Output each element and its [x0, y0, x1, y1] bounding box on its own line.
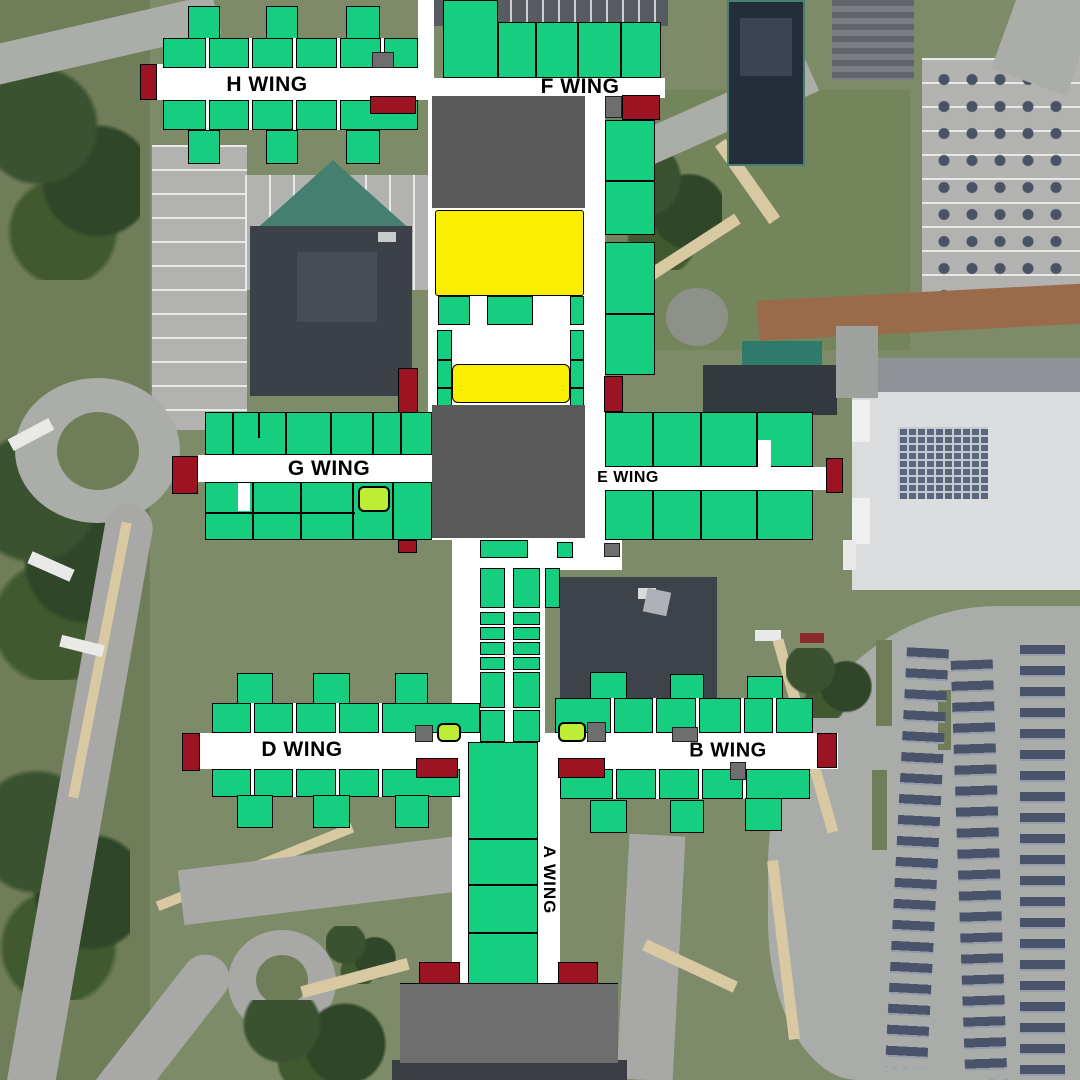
- stairwell: [419, 962, 460, 984]
- room-divider: [378, 769, 383, 797]
- room: [480, 657, 505, 670]
- room-divider: [740, 698, 745, 733]
- wall-line: [400, 412, 402, 455]
- wall-line: [300, 482, 302, 540]
- room-divider: [250, 703, 255, 733]
- room-divider: [612, 769, 617, 799]
- wing-label-g: G WING: [288, 457, 370, 481]
- room-gray: [372, 52, 394, 68]
- room: [437, 330, 452, 360]
- grass-island: [872, 770, 887, 850]
- building-roof: [297, 252, 377, 322]
- wall-line: [285, 412, 287, 455]
- building-roof: [850, 358, 1080, 396]
- building-roof: [703, 365, 837, 415]
- building-roof: [852, 400, 870, 442]
- wall-line: [756, 490, 758, 540]
- wall-line: [372, 412, 374, 455]
- wing-label-b: B WING: [689, 740, 766, 763]
- room: [443, 0, 498, 78]
- stairwell: [558, 962, 598, 984]
- room: [570, 330, 584, 360]
- parking-lot: [152, 145, 247, 430]
- parked-cars: [930, 66, 1072, 316]
- stairwell: [416, 758, 458, 778]
- room-row: [605, 490, 813, 540]
- room-divider: [336, 38, 341, 68]
- room-divider: [292, 38, 297, 68]
- room: [513, 642, 540, 655]
- room-highlight: [437, 723, 461, 742]
- room: [513, 710, 540, 742]
- room: [188, 6, 220, 40]
- room-gray: [415, 725, 433, 742]
- room-yellow: [452, 364, 570, 403]
- stairwell: [398, 540, 417, 553]
- room: [395, 795, 429, 828]
- room: [480, 627, 505, 640]
- building-roof: [392, 1060, 627, 1080]
- room: [480, 710, 505, 742]
- room-divider: [292, 100, 297, 130]
- room: [570, 360, 584, 388]
- room: [237, 673, 273, 705]
- room-divider: [655, 769, 660, 799]
- block-gray: [432, 96, 585, 208]
- room-divider: [292, 703, 297, 733]
- wall-line: [330, 412, 332, 455]
- wall-line: [252, 482, 254, 540]
- grass-island: [876, 640, 892, 726]
- room-row: [205, 412, 432, 455]
- wall-line: [205, 512, 355, 514]
- room: [438, 296, 470, 325]
- room: [480, 612, 505, 625]
- room: [480, 540, 528, 558]
- wall-line: [468, 932, 538, 934]
- room: [557, 542, 573, 558]
- stairwell: [140, 64, 157, 100]
- wall-line: [535, 22, 537, 78]
- wall-line: [577, 22, 579, 78]
- block-gray: [432, 405, 585, 538]
- room: [605, 242, 655, 375]
- road: [836, 326, 878, 398]
- room: [570, 296, 584, 325]
- building-roof: [852, 498, 870, 544]
- room: [188, 130, 220, 164]
- room: [513, 627, 540, 640]
- room-divider: [378, 703, 383, 733]
- wall-line: [352, 482, 354, 540]
- room-highlight: [358, 486, 390, 512]
- road: [178, 834, 482, 925]
- skylight-grid: [898, 427, 988, 499]
- room-gray: [587, 722, 606, 742]
- room-yellow: [435, 210, 584, 296]
- wall-line: [232, 412, 234, 455]
- room-divider: [205, 38, 210, 68]
- room: [346, 6, 380, 40]
- room: [513, 672, 540, 708]
- room-divider: [336, 100, 341, 130]
- stairwell: [622, 95, 660, 120]
- wall-line: [652, 490, 654, 540]
- room-gray: [730, 762, 746, 780]
- room: [480, 568, 505, 608]
- wing-label-a: A WING: [539, 846, 559, 915]
- roof-vent: [378, 232, 396, 242]
- room: [437, 360, 452, 388]
- wall-line: [605, 180, 655, 182]
- room-divider: [292, 769, 297, 797]
- trees: [0, 60, 140, 280]
- room: [670, 800, 704, 833]
- room: [513, 612, 540, 625]
- room: [513, 657, 540, 670]
- room-gray: [604, 543, 620, 557]
- block-gray: [400, 983, 618, 1063]
- room: [513, 568, 540, 608]
- room-divider: [250, 769, 255, 797]
- room-column: [468, 742, 538, 985]
- stairwell: [826, 458, 843, 493]
- stairwell: [817, 733, 837, 768]
- room: [313, 673, 350, 705]
- room: [346, 130, 380, 164]
- wall-line: [392, 482, 394, 540]
- wall-line: [652, 412, 654, 467]
- room-divider: [610, 698, 615, 733]
- room-divider: [335, 703, 340, 733]
- room-divider: [248, 38, 253, 68]
- room-gray: [605, 96, 622, 118]
- campus-map: H WING F WING G WING E WING D WING B WIN…: [0, 0, 1080, 1080]
- stairwell: [398, 368, 418, 413]
- room: [395, 673, 428, 705]
- wall-line: [258, 412, 260, 438]
- grass-island: [256, 955, 308, 1005]
- wall-line: [468, 884, 538, 886]
- room-highlight: [558, 722, 586, 742]
- room-divider: [335, 769, 340, 797]
- trees: [240, 1000, 390, 1080]
- room-divider: [205, 100, 210, 130]
- room: [605, 120, 655, 235]
- room: [313, 795, 350, 828]
- stairwell: [172, 456, 198, 494]
- wall-line: [700, 490, 702, 540]
- room-white: [758, 440, 771, 467]
- wall-line: [605, 313, 655, 315]
- wing-label-h: H WING: [226, 73, 307, 97]
- car: [800, 633, 824, 643]
- room: [590, 800, 627, 833]
- room: [545, 568, 560, 608]
- gravel-patch: [832, 0, 914, 80]
- wall-line: [468, 838, 538, 840]
- truck: [843, 540, 856, 570]
- room: [237, 795, 273, 828]
- room-white: [238, 483, 250, 511]
- playground: [666, 288, 728, 346]
- building-roof: [740, 18, 792, 76]
- wing-label-e: E WING: [597, 469, 659, 487]
- wall-line: [700, 412, 702, 467]
- stairwell: [370, 96, 416, 114]
- room-row: [605, 412, 813, 467]
- room: [480, 672, 505, 708]
- parked-cars: [1020, 645, 1065, 1080]
- room-divider: [772, 698, 777, 733]
- room-divider: [698, 769, 703, 799]
- wing-label-d: D WING: [261, 738, 342, 762]
- wall-line: [620, 22, 622, 78]
- room: [745, 798, 782, 831]
- room-row: [498, 22, 661, 78]
- room: [480, 642, 505, 655]
- stairwell: [604, 376, 623, 412]
- room-divider: [248, 100, 253, 130]
- room: [266, 6, 298, 40]
- room-divider: [652, 698, 657, 733]
- rooftop-unit: [643, 588, 671, 616]
- room: [487, 296, 533, 325]
- grass-island: [57, 412, 139, 490]
- stairwell: [182, 733, 200, 771]
- room: [266, 130, 298, 164]
- wing-label-f: F WING: [541, 75, 620, 99]
- stairwell: [558, 758, 605, 778]
